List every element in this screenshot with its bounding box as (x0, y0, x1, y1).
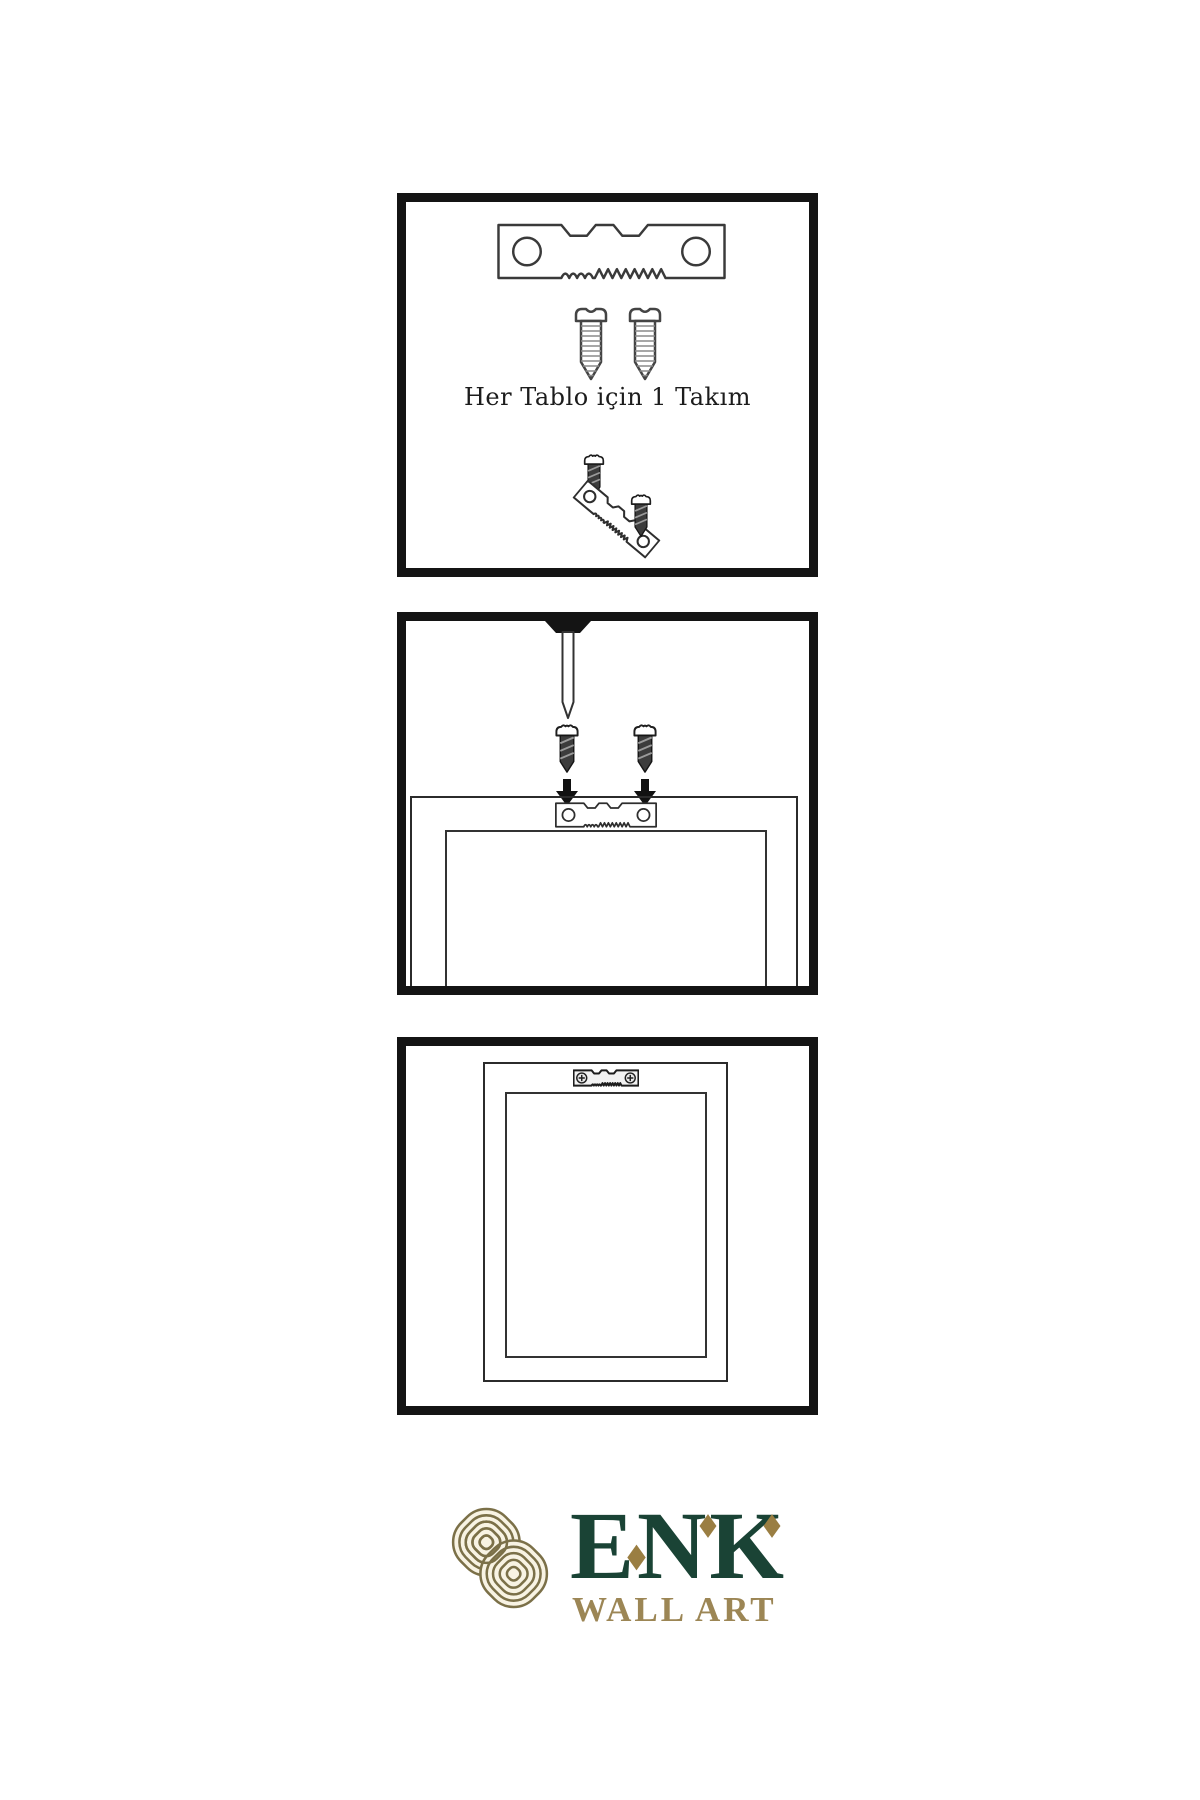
sawtooth-hanger-icon (495, 223, 728, 280)
dark-screw-icon (632, 723, 658, 775)
panel-hardware-kit: Her Tablo için 1 Takım (397, 193, 818, 577)
panel-mounted-frame (397, 1037, 818, 1415)
brand-subtitle: WALL ART (572, 1592, 802, 1627)
hanging-instruction-sheet: Her Tablo için 1 Takım (0, 0, 1200, 1800)
dark-screw-icon (630, 493, 652, 539)
phillips-screw-head-icon (577, 1073, 587, 1083)
brand-name: ENK (570, 1498, 800, 1594)
screw-icon (627, 305, 663, 383)
nail-icon (545, 621, 591, 721)
phillips-screw-head-icon (625, 1073, 635, 1083)
frame-back-inner-edge (505, 1092, 707, 1358)
mounted-sawtooth-hanger-icon (573, 1068, 639, 1088)
frame-back-inner-edge (445, 830, 767, 995)
sawtooth-hanger-icon (555, 802, 657, 828)
screw-icon (573, 305, 609, 383)
panel-wall-nail-and-screws (397, 612, 818, 995)
dark-screw-icon (554, 723, 580, 775)
knot-logo-icon (437, 1486, 563, 1630)
kit-caption: Her Tablo için 1 Takım (406, 383, 809, 411)
